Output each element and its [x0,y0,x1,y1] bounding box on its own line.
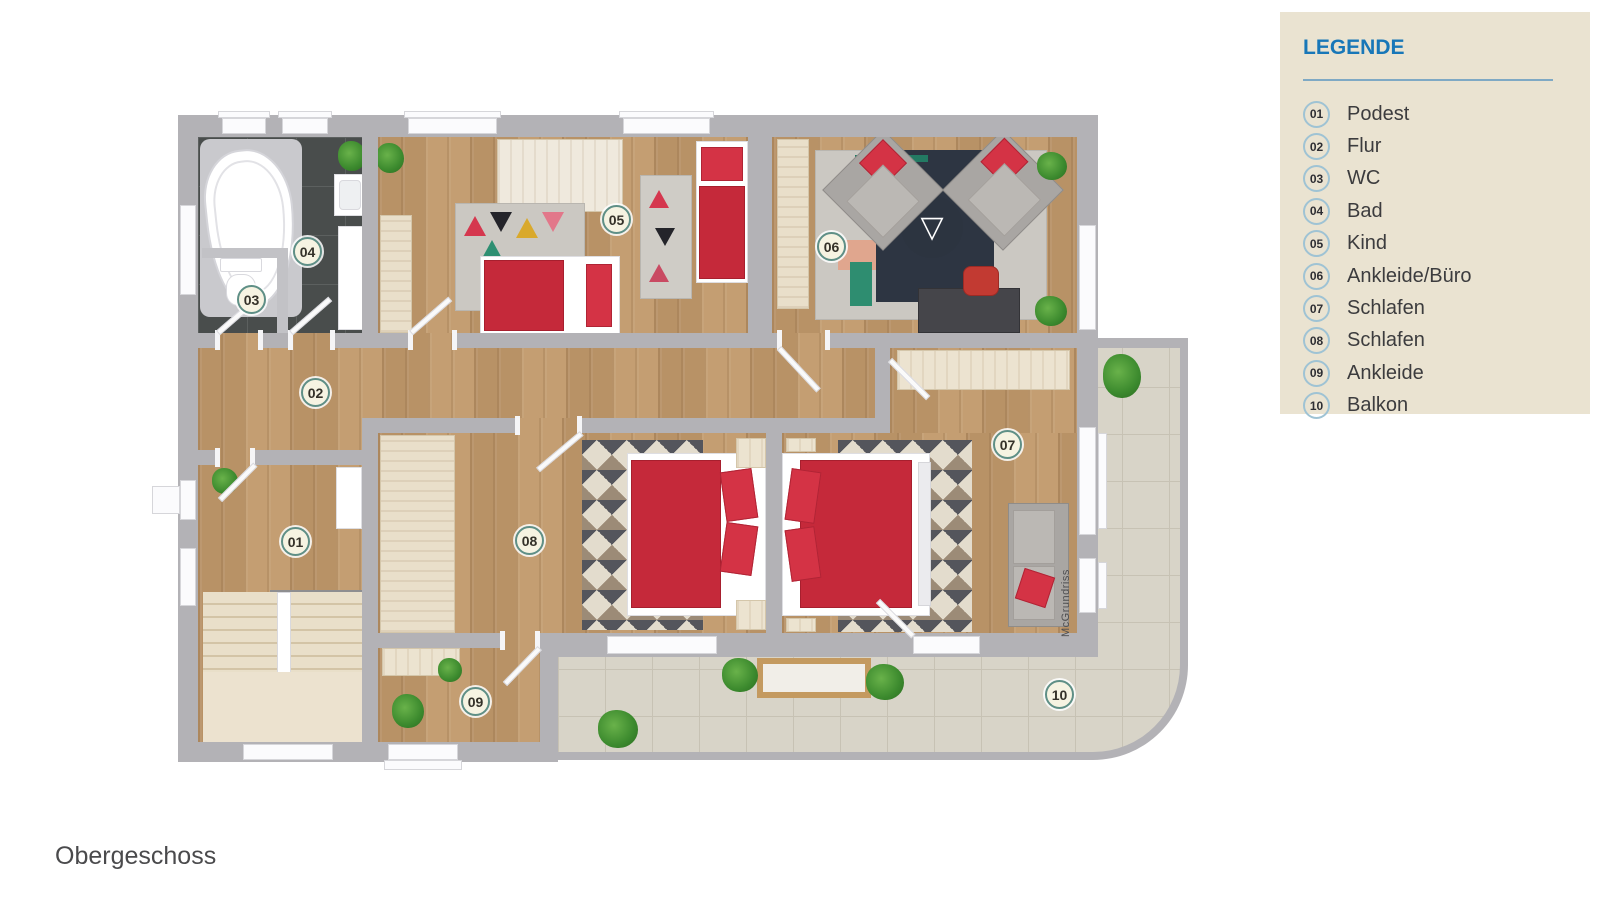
room-badge-01-num: 01 [288,534,304,550]
window-right-1 [1079,225,1096,330]
legend-item-num: 06 [1303,263,1330,290]
rug-triangle [655,228,675,246]
wall-podest-top [198,450,215,465]
wall-corridor-top [457,333,777,348]
legend-item: 09Ankleide [1303,357,1580,389]
rug-buero-teal [850,262,872,306]
washbasin-bowl [339,180,361,210]
window-sill [384,760,462,770]
window-right-2 [1079,427,1096,535]
rug-triangle [649,190,669,208]
legend-item: 05Kind [1303,228,1580,260]
door-post [258,330,263,350]
office-chair [963,266,999,296]
legend-item-label: Podest [1347,103,1409,126]
room-badge-07-num: 07 [1000,437,1016,453]
wall-corridor-top [263,333,288,348]
wall-ankleide9-top [378,633,505,648]
legend-title: LEGENDE [1303,36,1405,60]
door-post [500,631,505,650]
floorplan-page: ▽ [0,0,1600,900]
legend-item-num: 10 [1303,392,1330,419]
room-badge-10: 10 [1045,680,1074,709]
door-post [330,330,335,350]
room-badge-06: 06 [817,232,846,261]
bedside8-top [736,438,766,468]
wall-kind-buero-divider [748,137,772,333]
wall-bad-kind-divider [362,137,378,333]
plant-ankleide9-small [438,658,462,682]
window-right-3 [1079,558,1096,613]
legend-divider [1303,79,1553,81]
stairs-flight-left [203,592,277,672]
wall-corridor-bottom [365,418,515,433]
bedside7-bottom [786,618,816,632]
rug-triangle [464,216,486,236]
bed7-bench [918,462,931,606]
stairs-flight-right [291,592,365,678]
legend-item: 04Bad [1303,195,1580,227]
wall-corridor-top [198,333,215,348]
room-badge-01: 01 [281,527,310,556]
legend-item-num: 08 [1303,327,1330,354]
door-bottom [388,744,458,760]
legend-item-label: Schlafen [1347,329,1425,352]
floor-label: Obergeschoss [55,842,216,871]
bed-kind-duvet [484,260,564,331]
wall-corridor-top [335,333,408,348]
bed8-pillow-top [720,468,759,522]
wall-corridor-end-stub [875,348,890,418]
bedside8-bottom [736,600,766,630]
plant-balcony-2 [866,664,904,700]
window-left-1 [180,205,196,295]
rug-triangle [516,218,538,238]
bed-kind2-pillow [701,147,743,181]
plant-balcony-4 [1103,354,1141,398]
room-badge-05-num: 05 [609,212,625,228]
window-sill [152,486,180,514]
room-badge-08: 08 [515,526,544,555]
room-badge-03: 03 [237,285,266,314]
window-sill [619,111,714,118]
room-badge-04: 04 [293,237,322,266]
legend-item: 10Balkon [1303,390,1580,422]
plant-balcony-1 [722,658,758,692]
legend-item-label: Bad [1347,200,1383,223]
room-badge-09-num: 09 [468,694,484,710]
wall-wc-vertical [277,258,288,333]
legend-item-label: Balkon [1347,394,1408,417]
wardrobe-schlafen8 [380,435,455,633]
window-top-3 [408,118,497,134]
room-badge-06-num: 06 [824,239,840,255]
watermark-text: McGrundriss [1060,545,1076,637]
wall-corridor-top [830,333,1077,348]
room-badge-07: 07 [993,430,1022,459]
legend-item-label: Schlafen [1347,297,1425,320]
plant-kind [376,143,404,173]
legend-item-label: Ankleide/Büro [1347,265,1472,288]
cabinet-podest [336,467,362,529]
balcony-parapet [1098,338,1188,348]
window-bottom-1 [243,744,333,760]
legend-item-num: 05 [1303,230,1330,257]
window-top-2 [282,118,328,134]
room-badge-03-num: 03 [244,292,260,308]
toilet-tank [220,258,262,272]
legend-item: 01Podest [1303,98,1580,130]
plant-balcony-3 [598,710,638,748]
window-left-3 [180,548,196,606]
sofa-cushion-1 [1013,510,1055,564]
legend-item-num: 09 [1303,360,1330,387]
window-sill [278,111,332,118]
window-sill [1098,433,1107,529]
door-post [515,416,520,435]
wardrobe-buero [777,139,809,309]
stairs-landing [203,672,365,742]
room-badge-02: 02 [301,378,330,407]
door-schlafen7-balcony [913,636,980,654]
legend-item: 03WC [1303,163,1580,195]
legend-panel: LEGENDE 01Podest 02Flur 03WC 04Bad 05Kin… [1280,12,1590,414]
legend-item: 07Schlafen [1303,292,1580,324]
legend-item-num: 03 [1303,165,1330,192]
wall-corridor-bottom [582,418,890,433]
wall-podest-top [255,450,365,465]
door-post [215,448,220,467]
legend-item-label: WC [1347,167,1380,190]
stairs-stringer [277,592,291,678]
balcony-bench [757,658,871,698]
window-schlafen8-balcony [607,636,717,654]
room-badge-08-num: 08 [522,533,538,549]
room-badge-02-num: 02 [308,385,324,401]
sideboard-kind [497,139,623,212]
bed-kind-pillow [586,264,612,327]
legend-item-num: 07 [1303,295,1330,322]
legend-item-num: 04 [1303,198,1330,225]
rug-triangle [490,212,512,232]
window-sill [404,111,501,118]
window-top-1 [222,118,266,134]
legend-item-label: Flur [1347,135,1381,158]
door-post [825,330,830,350]
legend-item-num: 01 [1303,101,1330,128]
wardrobe-kind [380,215,412,333]
wardrobe-schlafen7 [897,350,1070,390]
legend-item-label: Kind [1347,232,1387,255]
rug-triangle [542,212,564,232]
plant-ankleide9-big [392,694,424,728]
legend-item-num: 02 [1303,133,1330,160]
room-badge-05: 05 [602,205,631,234]
room-badge-09: 09 [461,687,490,716]
compass-triangle-glyph: ▽ [920,210,943,245]
legend-item-label: Ankleide [1347,362,1424,385]
window-sill [1098,562,1107,609]
bed8-duvet [631,460,721,608]
bed-kind2-duvet [699,186,745,279]
legend-item: 08Schlafen [1303,325,1580,357]
door-post [452,330,457,350]
window-sill [218,111,270,118]
rug-triangle [649,264,669,282]
wall-podest-right [362,418,378,762]
room-badge-04-num: 04 [300,244,316,260]
window-top-4 [623,118,710,134]
room-badge-10-num: 10 [1052,687,1068,703]
window-left-2 [180,480,196,520]
wall-schlafen-divider [766,433,782,633]
rug-kind-2 [640,175,692,299]
wall-wc-horizontal [202,248,288,258]
legend-item: 02Flur [1303,130,1580,162]
wall-ankleide9-right [540,633,558,762]
bedside7-top [786,438,816,452]
legend-rows: 01Podest 02Flur 03WC 04Bad 05Kind 06Ankl… [1303,98,1580,422]
plant-buero-1 [1037,152,1067,180]
plant-buero-2 [1035,296,1067,326]
legend-item: 06Ankleide/Büro [1303,260,1580,292]
